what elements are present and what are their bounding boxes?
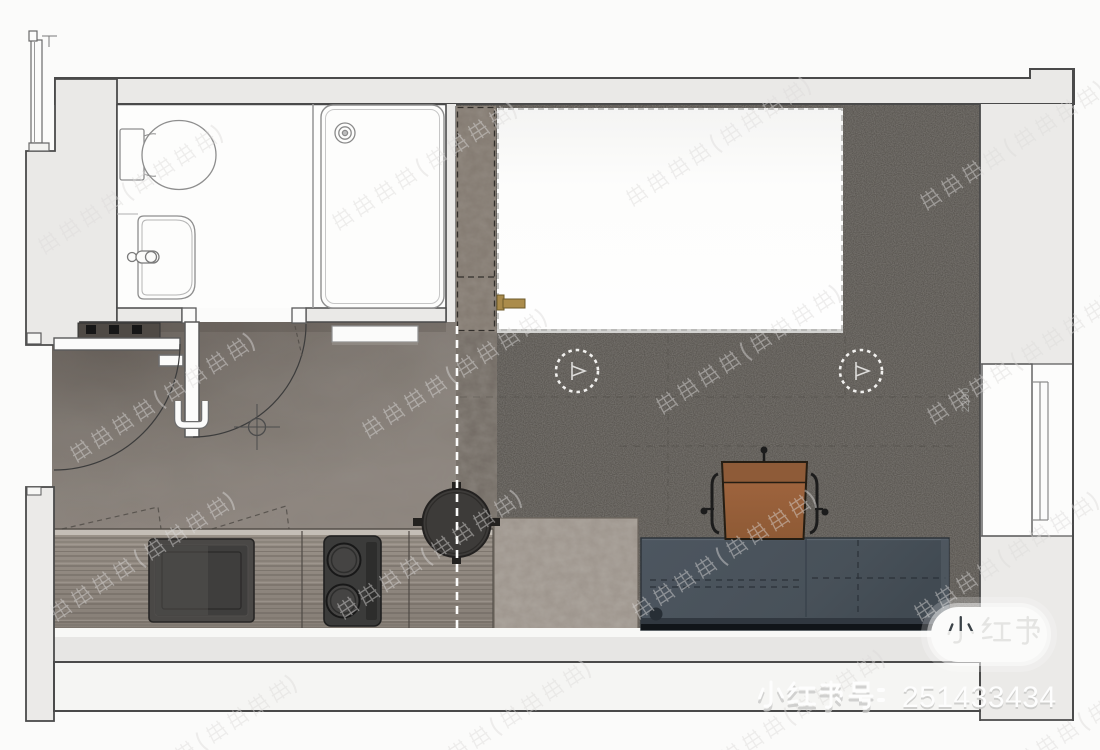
svg-text:251433434: 251433434 <box>902 681 1057 714</box>
